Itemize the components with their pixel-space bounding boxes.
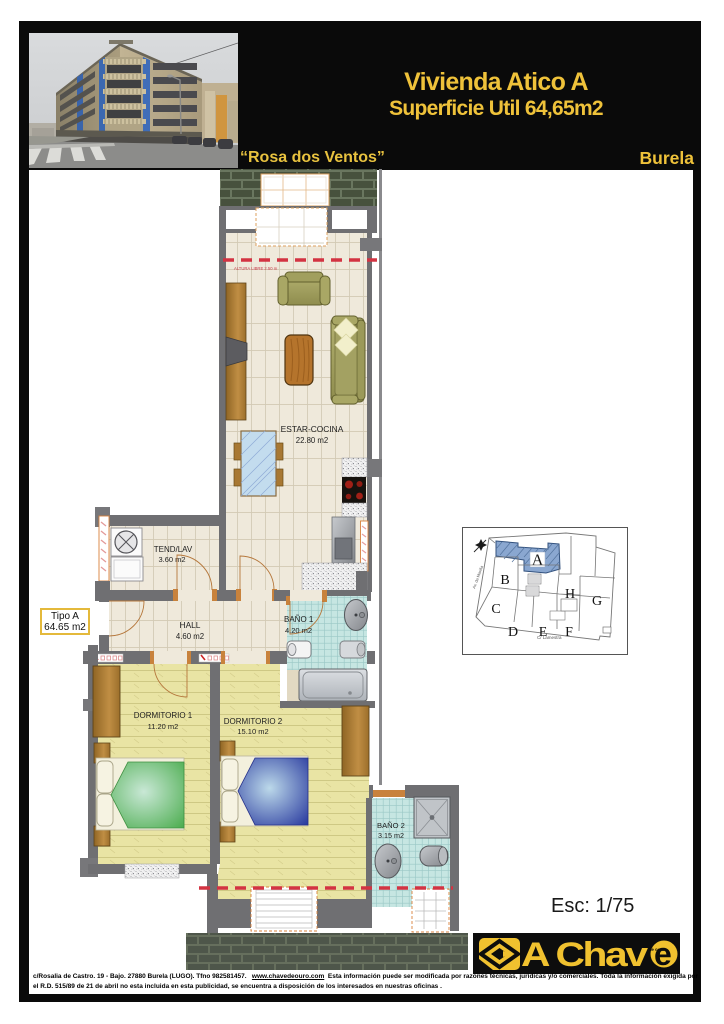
svg-text:11.20 m2: 11.20 m2 bbox=[148, 722, 179, 731]
svg-text:A Chav: A Chav bbox=[521, 935, 648, 973]
svg-text:e: e bbox=[654, 936, 672, 972]
svg-text:TEND/LAV: TEND/LAV bbox=[154, 545, 193, 554]
svg-text:BAÑO 1: BAÑO 1 bbox=[284, 615, 314, 624]
svg-text:G: G bbox=[592, 594, 602, 609]
svg-text:BAÑO 2: BAÑO 2 bbox=[377, 821, 405, 830]
svg-text:HALL: HALL bbox=[180, 620, 201, 630]
svg-text:D: D bbox=[508, 625, 518, 640]
svg-text:4.20 m2: 4.20 m2 bbox=[285, 626, 312, 635]
svg-text:3.60 m2: 3.60 m2 bbox=[158, 555, 185, 564]
svg-text:15.10 m2: 15.10 m2 bbox=[237, 727, 268, 736]
svg-text:3.15 m2: 3.15 m2 bbox=[378, 831, 404, 840]
svg-text:C: C bbox=[491, 602, 500, 617]
svg-text:DORMITORIO 1: DORMITORIO 1 bbox=[134, 711, 193, 720]
svg-text:22.80 m2: 22.80 m2 bbox=[296, 436, 329, 445]
svg-text:A: A bbox=[532, 552, 544, 569]
svg-text:4.60 m2: 4.60 m2 bbox=[176, 632, 204, 641]
svg-text:DORMITORIO 2: DORMITORIO 2 bbox=[224, 717, 283, 726]
svg-text:ALTURA LIBRE 2.50 m: ALTURA LIBRE 2.50 m bbox=[234, 266, 278, 271]
svg-text:B: B bbox=[500, 573, 509, 588]
svg-text:ESTAR-COCINA: ESTAR-COCINA bbox=[281, 424, 344, 434]
svg-text:E: E bbox=[539, 625, 548, 640]
svg-text:F: F bbox=[565, 625, 573, 640]
